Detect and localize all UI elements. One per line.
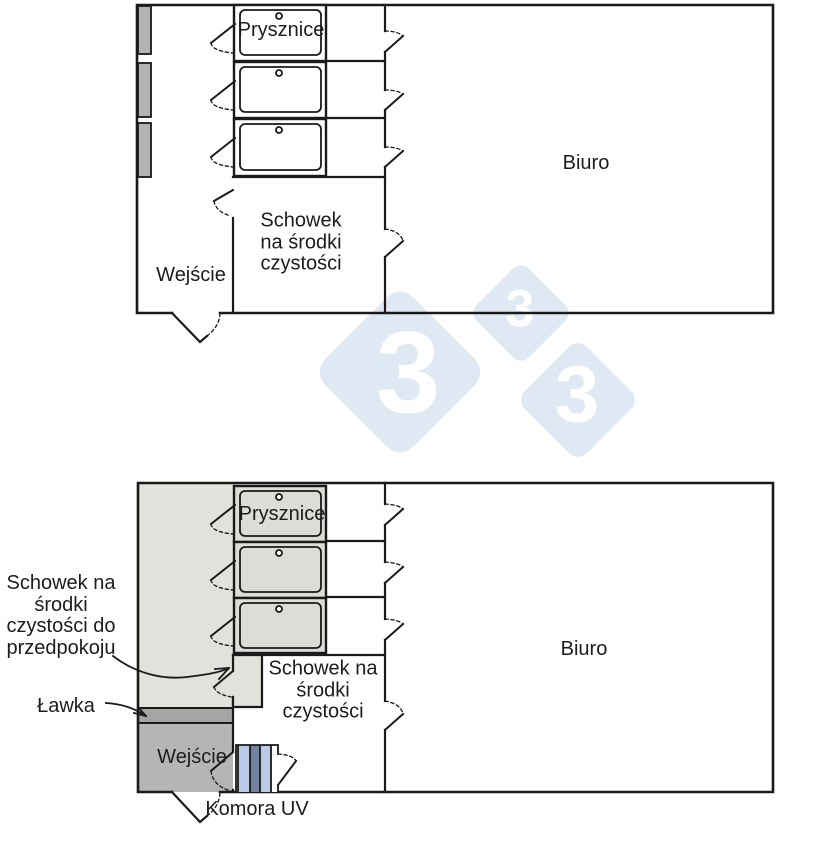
door-leaf xyxy=(385,241,403,257)
watermark-333: 3 3 3 xyxy=(312,261,640,463)
door-swing-arc xyxy=(207,314,220,336)
label-schowek-top: Schowek na środki czystości xyxy=(260,211,341,276)
uv-panel xyxy=(238,745,250,792)
door-leaf xyxy=(211,24,235,43)
diagram-canvas: 3 3 3 xyxy=(0,0,820,860)
door-swing-arc xyxy=(385,701,403,714)
door-swing-arc xyxy=(211,43,233,53)
door-swing-arc xyxy=(385,562,403,567)
door-swing-arc xyxy=(385,147,403,151)
door-swing-arc xyxy=(385,619,403,624)
watermark-digit-right: 3 xyxy=(555,350,600,439)
label-prysznice-top: Prysznice xyxy=(238,20,325,42)
uv-panel xyxy=(260,745,271,792)
label-schowek-bottom: Schowek na środki czystości xyxy=(269,659,378,724)
door-leaf xyxy=(214,190,233,201)
label-wejscie-bottom: Wejście xyxy=(157,747,227,769)
label-komora-uv: Komora UV xyxy=(205,799,308,821)
office-doors xyxy=(385,504,403,730)
floor-plan-bottom xyxy=(106,483,773,822)
label-ext-schowek: Schowek na środki czystości do przedpoko… xyxy=(7,573,116,659)
door-leaf xyxy=(385,714,403,730)
locker-blocks xyxy=(138,6,151,177)
door-leaf xyxy=(172,792,207,822)
door-leaf xyxy=(278,761,296,785)
watermark-digit-top: 3 xyxy=(506,280,535,338)
floor-plan-top xyxy=(137,5,773,342)
label-biuro-top: Biuro xyxy=(563,153,610,175)
door-swing-arc xyxy=(278,754,296,761)
door-swing-arc xyxy=(211,100,233,110)
stall-doors xyxy=(211,24,235,216)
locker-block xyxy=(138,6,151,54)
label-wejscie-top: Wejście xyxy=(156,265,226,287)
uv-panel-dark xyxy=(250,745,260,792)
door-swing-arc xyxy=(385,90,403,94)
floor-plan-figure: 3 3 3 xyxy=(0,0,820,860)
door-leaf xyxy=(385,624,403,640)
label-prysznice-bottom: Prysznice xyxy=(239,504,326,526)
door-leaf xyxy=(172,313,207,342)
door-leaf xyxy=(385,94,403,110)
door-swing-arc xyxy=(211,157,233,167)
door-leaf xyxy=(385,567,403,583)
door-swing-arc xyxy=(214,201,231,216)
door-leaf xyxy=(211,138,235,157)
label-biuro-bottom: Biuro xyxy=(561,639,608,661)
door-leaf xyxy=(385,151,403,167)
watermark-digit-large: 3 xyxy=(376,307,441,437)
door-leaf xyxy=(385,509,403,525)
shower-drain-icon xyxy=(276,606,282,612)
door-leaf xyxy=(385,36,403,52)
uv-chamber xyxy=(236,745,296,792)
door-swing-arc xyxy=(385,31,403,36)
locker-block xyxy=(138,123,151,177)
label-lawka: Ławka xyxy=(37,696,95,718)
small-closet-area xyxy=(233,655,262,707)
shower-drain-icon xyxy=(276,494,282,500)
shower-drain-icon xyxy=(276,550,282,556)
entrance-door xyxy=(172,313,220,342)
door-leaf xyxy=(211,81,235,100)
office-doors xyxy=(385,31,403,257)
locker-block xyxy=(138,63,151,117)
door-swing-arc xyxy=(385,229,403,241)
bench xyxy=(138,708,233,723)
door-swing-arc xyxy=(385,504,403,509)
